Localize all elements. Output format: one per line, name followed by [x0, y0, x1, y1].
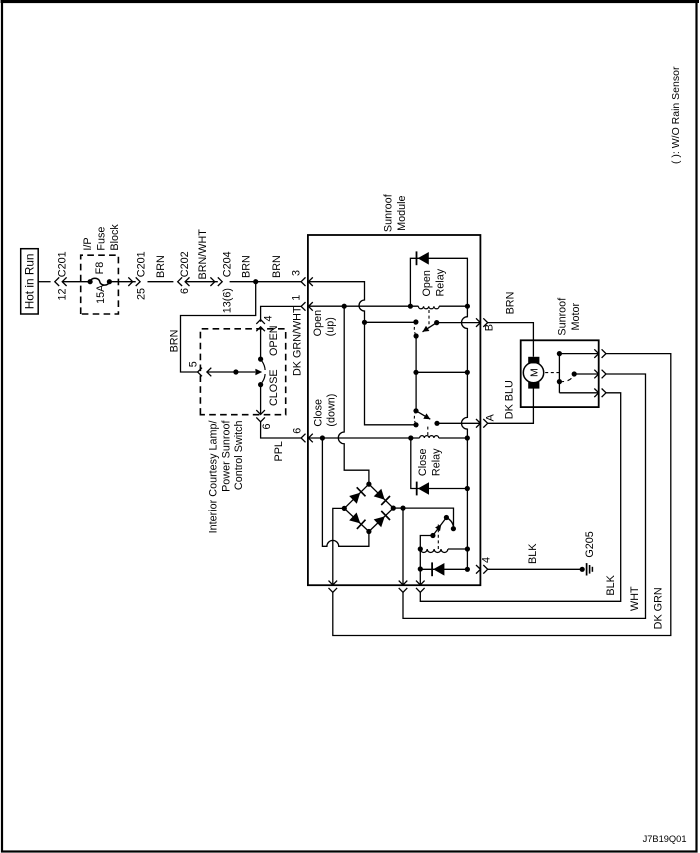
svg-text:BLK: BLK: [527, 543, 539, 564]
svg-text:(down): (down): [325, 394, 337, 427]
svg-text:15A: 15A: [95, 284, 107, 304]
svg-text:M: M: [529, 368, 541, 377]
svg-text:Fuse: Fuse: [96, 227, 108, 251]
svg-text:6: 6: [292, 428, 304, 434]
svg-text:BRN: BRN: [155, 255, 167, 278]
svg-text:4: 4: [481, 557, 493, 563]
svg-text:6: 6: [261, 424, 273, 430]
svg-text:J7B19Q01: J7B19Q01: [643, 834, 687, 844]
svg-text:25: 25: [135, 288, 147, 300]
svg-text:Sunroof: Sunroof: [556, 297, 568, 336]
svg-text:PPL: PPL: [273, 441, 285, 461]
svg-text:C204: C204: [221, 251, 233, 277]
svg-text:Close: Close: [417, 448, 429, 476]
svg-text:13(6): 13(6): [221, 288, 233, 313]
svg-text:BRN: BRN: [168, 330, 180, 353]
svg-text:Sunroof: Sunroof: [383, 193, 395, 232]
svg-text:3: 3: [291, 270, 303, 276]
svg-text:F8: F8: [94, 262, 106, 275]
svg-text:A: A: [485, 413, 497, 421]
svg-text:Control Switch: Control Switch: [233, 421, 245, 491]
svg-text:Relay: Relay: [430, 448, 442, 476]
svg-text:DK GRN: DK GRN: [653, 587, 665, 629]
svg-text:BRN/WHT: BRN/WHT: [197, 229, 209, 280]
svg-text:BLK: BLK: [605, 574, 617, 595]
svg-text:BRN: BRN: [271, 255, 283, 278]
svg-text:DK GRN/WHT: DK GRN/WHT: [291, 306, 303, 376]
svg-text:BRN: BRN: [505, 292, 517, 315]
svg-text:1: 1: [291, 295, 303, 301]
svg-text:C201: C201: [57, 251, 69, 277]
svg-text:I/P: I/P: [82, 237, 94, 250]
svg-text:OPEN: OPEN: [268, 325, 280, 356]
svg-text:Interior Courtesy Lamp/: Interior Courtesy Lamp/: [207, 421, 219, 534]
svg-text:Motor: Motor: [570, 303, 582, 331]
svg-text:Hot in Run: Hot in Run: [23, 254, 37, 310]
svg-text:Block: Block: [109, 224, 121, 251]
svg-text:(up): (up): [325, 317, 337, 336]
svg-text:Relay: Relay: [434, 268, 446, 296]
svg-text:CLOSE: CLOSE: [268, 369, 280, 406]
svg-text:( ): W/O Rain Sensor: ( ): W/O Rain Sensor: [670, 66, 682, 164]
svg-text:B: B: [484, 324, 496, 331]
svg-text:Power Sunroof: Power Sunroof: [220, 420, 232, 492]
svg-text:4: 4: [263, 315, 275, 321]
svg-text:Module: Module: [396, 195, 408, 230]
svg-text:G205: G205: [584, 531, 596, 557]
svg-text:DK BLU: DK BLU: [504, 380, 516, 419]
svg-text:WHT: WHT: [629, 586, 641, 611]
svg-text:BRN: BRN: [240, 255, 252, 278]
svg-text:C201: C201: [135, 251, 147, 277]
svg-text:12: 12: [57, 289, 69, 301]
svg-text:6: 6: [179, 288, 191, 294]
svg-text:Open: Open: [421, 270, 433, 296]
svg-text:C202: C202: [179, 251, 191, 277]
svg-text:Open: Open: [312, 310, 324, 336]
svg-text:5: 5: [188, 361, 200, 367]
svg-text:Close: Close: [313, 399, 325, 427]
